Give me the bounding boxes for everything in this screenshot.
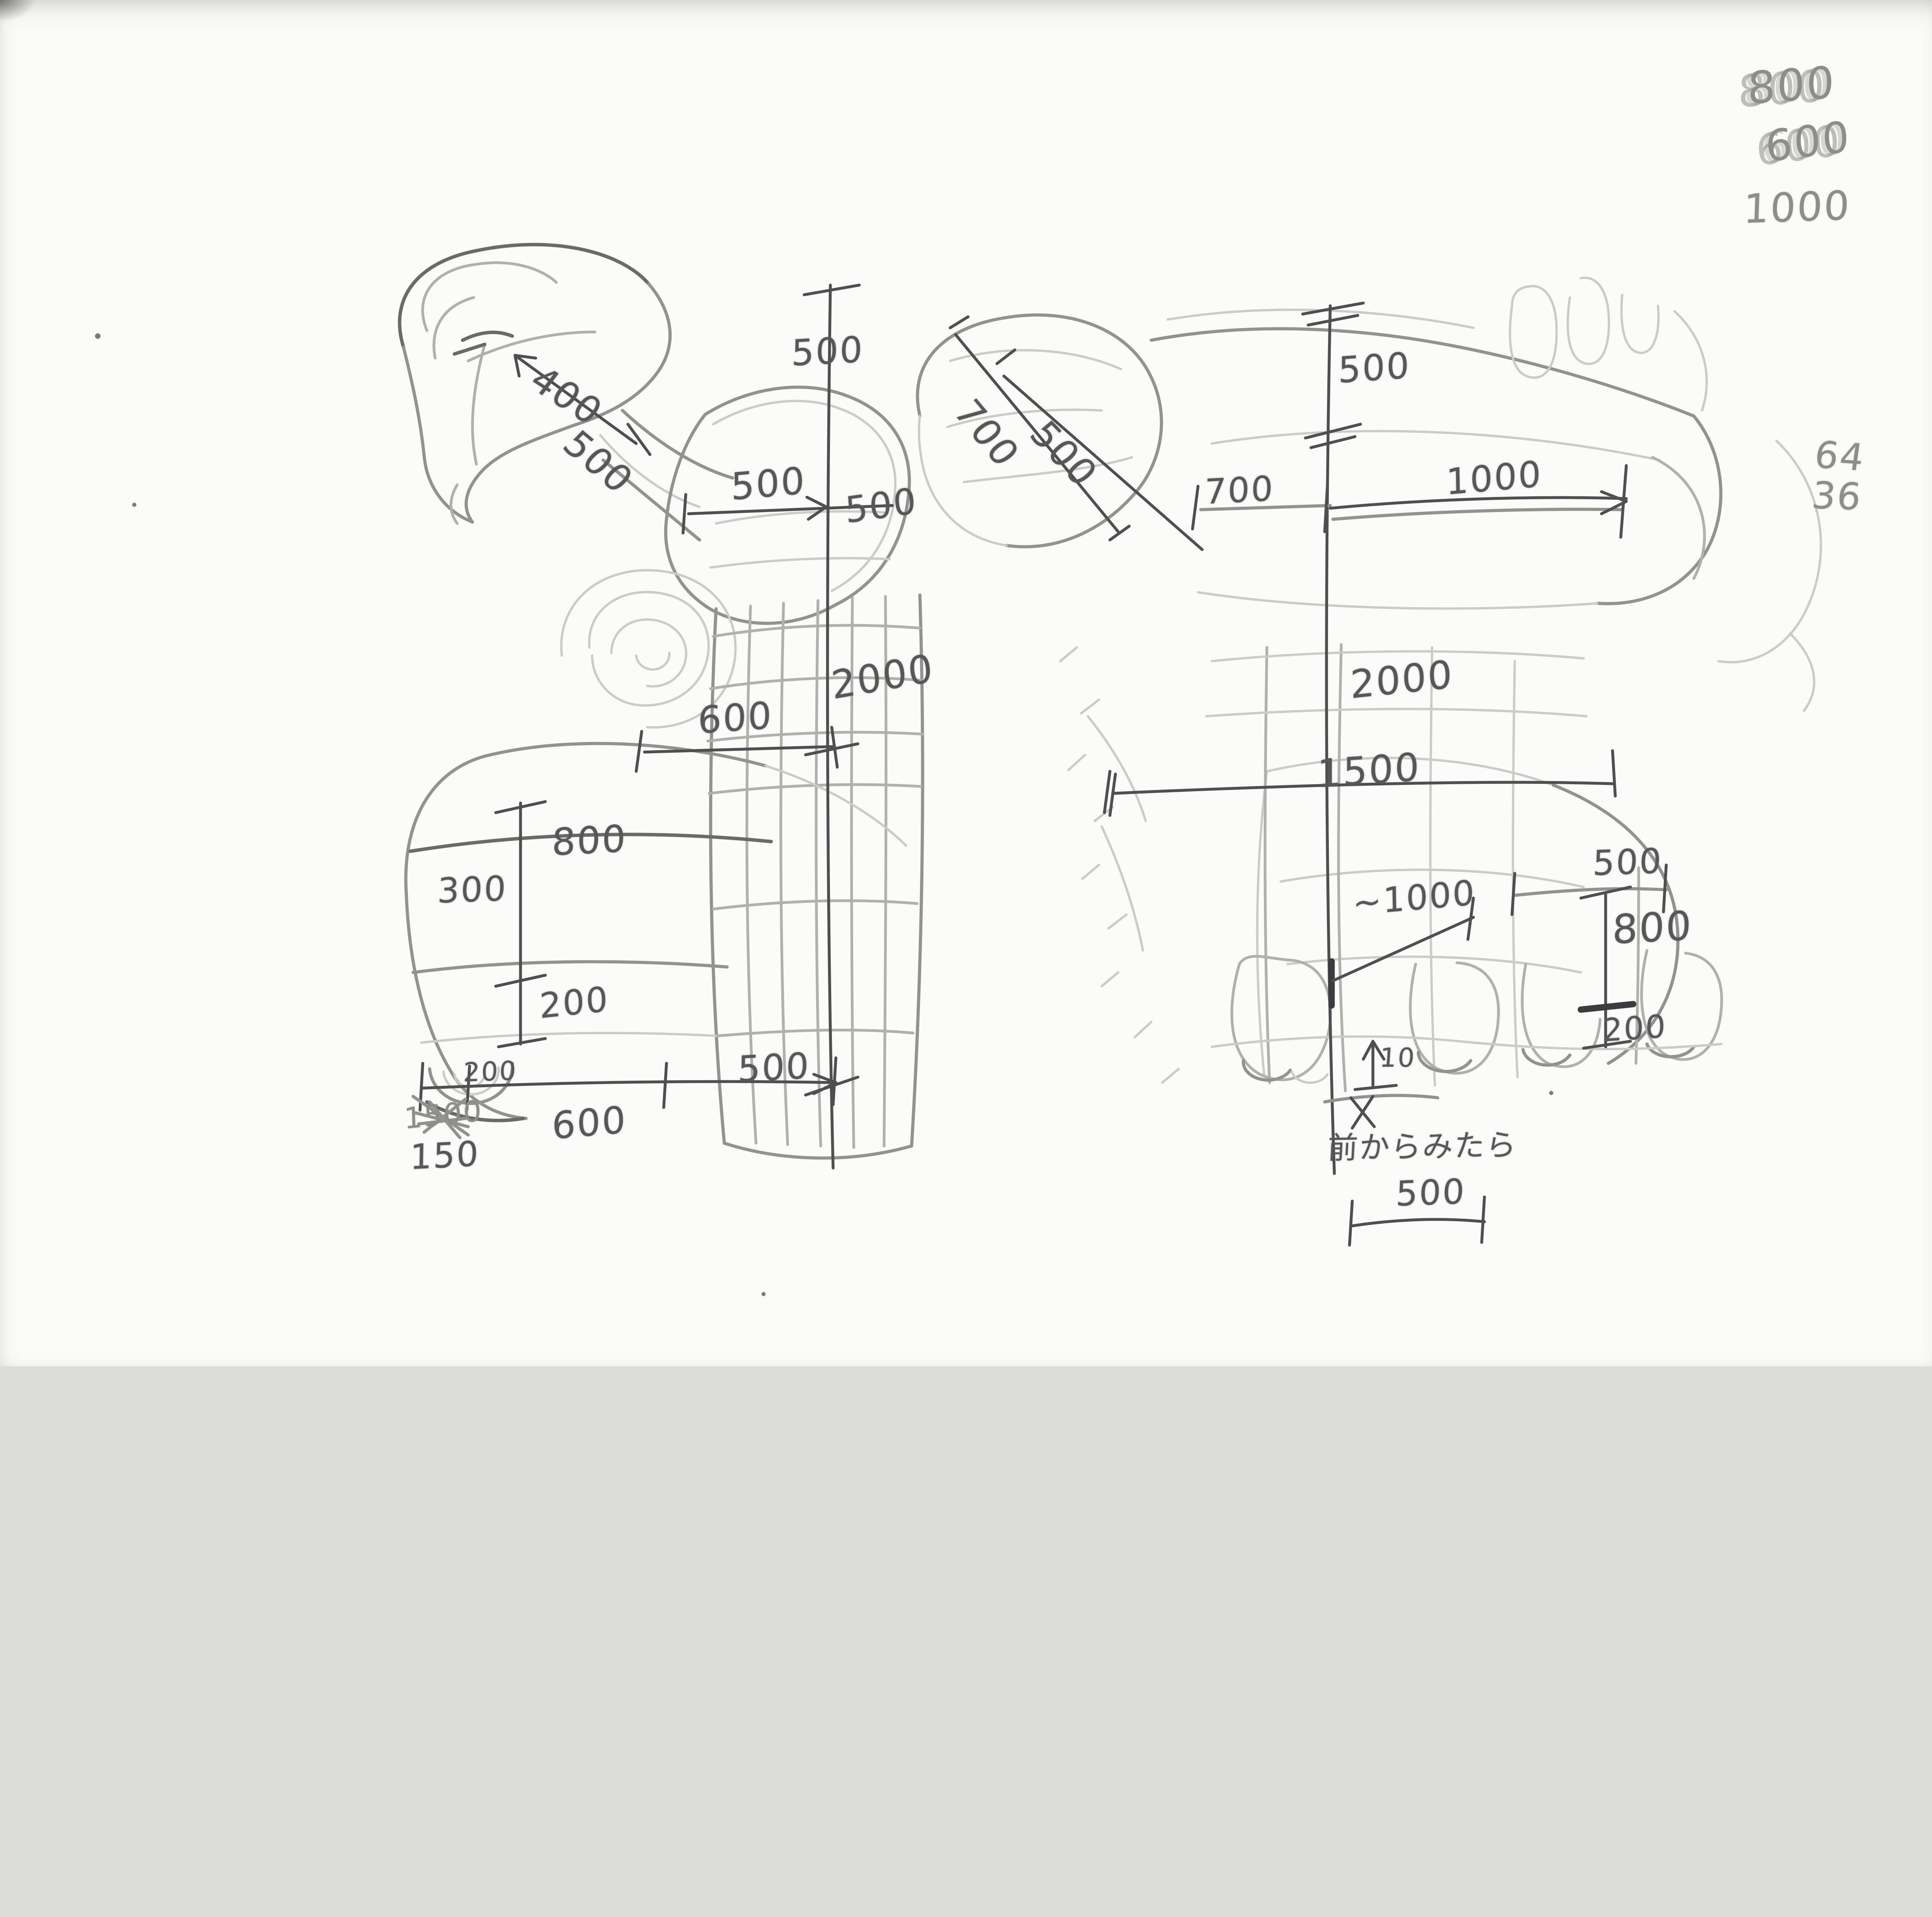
dim-front-800-leg: 800 [1612, 906, 1693, 950]
dim-front-500-foot: 500 [1395, 1174, 1466, 1211]
dim-front-2000: 2000 [1350, 656, 1454, 705]
dim-lower-150: 150 [410, 1137, 480, 1175]
dim-front-10-gap: 10 [1379, 1046, 1417, 1073]
paper-speck [762, 1292, 766, 1296]
paper-speck [1549, 1091, 1553, 1095]
dim-front-1000-arm: 1000 [1446, 457, 1543, 502]
pencil-sketch-lines [0, 0, 1932, 1366]
dim-lower-200-shin: 200 [539, 982, 610, 1023]
front-view-caption: 前からみたら [1327, 1132, 1518, 1166]
scratch-note-64: 64 [1812, 437, 1867, 478]
dim-front-200-ankle: 200 [1602, 1012, 1667, 1049]
scratch-note-600: 600 [1764, 117, 1852, 170]
scratch-note-36: 36 [1810, 478, 1864, 516]
dim-front-1500: 1500 [1317, 748, 1421, 794]
paper-speck [132, 503, 136, 507]
dim-front-1000-belly: ~1000 [1352, 875, 1476, 921]
dim-front-500-top: 500 [1338, 349, 1410, 390]
dim-lower-200-foot: 200 [463, 1059, 518, 1087]
scanned-sketch-page: 800 600 1000 64 36 500 400 500 500 500 2… [0, 0, 1932, 1366]
dim-lower-300: 300 [437, 871, 508, 908]
dim-front-500-hip: 500 [1592, 844, 1663, 881]
dim-side-600-hip: 600 [698, 698, 773, 740]
scratch-note-800: 800 [1748, 60, 1836, 111]
dim-side-500-top: 500 [791, 333, 864, 373]
dim-lower-800: 800 [551, 821, 627, 862]
x-mark-icon [1351, 1096, 1374, 1128]
dim-lower-500-foot: 500 [737, 1049, 810, 1089]
dim-side-500-chest: 500 [731, 463, 806, 507]
paper-speck [95, 333, 100, 339]
scratch-note-1000: 1000 [1743, 186, 1851, 230]
dim-lower-600-base: 600 [552, 1102, 627, 1146]
dim-side-500-height: 500 [844, 484, 918, 530]
dim-front-700-shoulder: 700 [1204, 471, 1274, 509]
